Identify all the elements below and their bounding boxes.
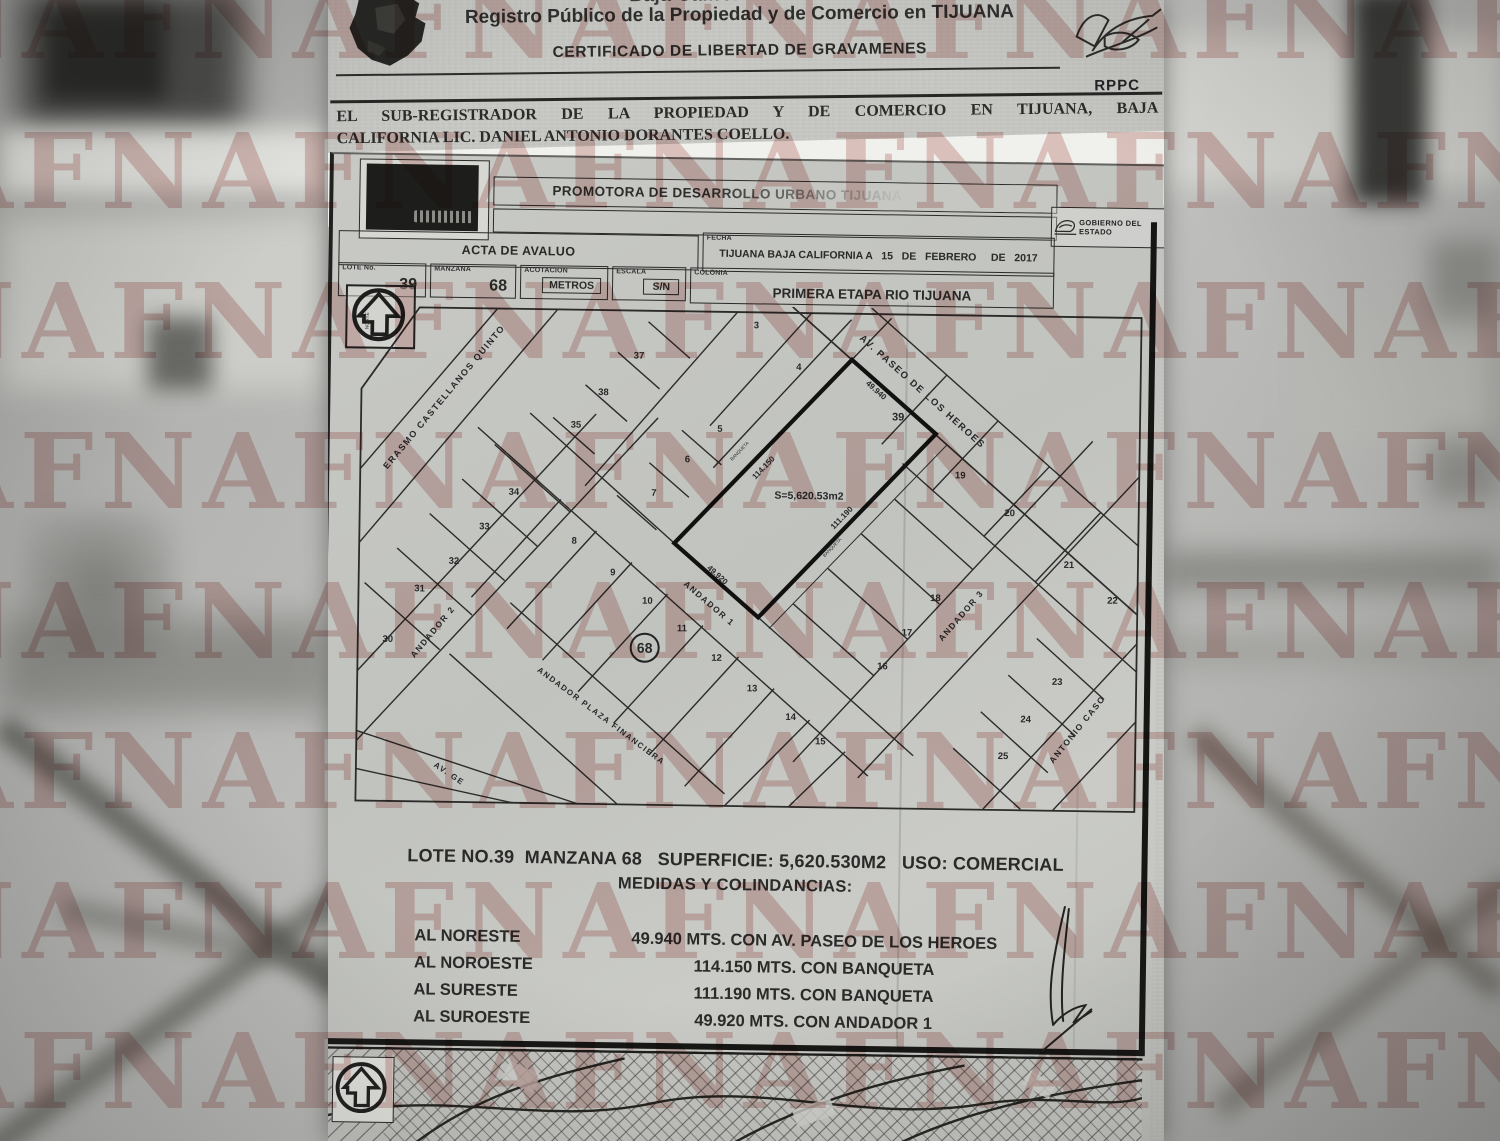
lot-number-label: 30 xyxy=(382,634,393,645)
lot-number-label: 6 xyxy=(685,454,690,465)
lot-number-label: 7 xyxy=(651,488,656,499)
lot-number-label: 22 xyxy=(1107,596,1118,607)
lot-number-label: 4 xyxy=(796,362,802,373)
rppc-logo: RPPC xyxy=(1061,6,1164,95)
lot-number-label: 35 xyxy=(571,420,582,431)
background-blob xyxy=(1430,240,1500,500)
lot-number-label: 34 xyxy=(509,487,520,498)
location-map-strip xyxy=(328,1046,1143,1141)
map-labels: 3456789101112131415161718192021222324253… xyxy=(376,315,1121,797)
photo-canvas: Baja California Registro Público de la P… xyxy=(0,0,1500,1141)
background-blob xyxy=(0,715,347,1000)
lot-number-label: 3 xyxy=(754,320,759,331)
lot-number-label: 23 xyxy=(1052,677,1063,688)
field-label: LOTE No. xyxy=(342,264,376,271)
lot-summary: LOTE NO.39 MANZANA 68 SUPERFICIE: 5,620.… xyxy=(361,845,1108,1045)
fecha-value: TIJUANA BAJA CALIFORNIA A 15 DE FEBRERO … xyxy=(703,248,1053,265)
background-blob xyxy=(1165,636,1500,666)
strip-north-icon xyxy=(333,1057,390,1118)
plan-page: PROMOTORA DE DESARROLLO URBANO TIJUANA G… xyxy=(328,152,1164,1141)
lot-number-label: 37 xyxy=(634,351,645,362)
developer-logo xyxy=(366,164,479,232)
lot-number-label: 25 xyxy=(998,751,1009,762)
background-blob xyxy=(1300,320,1500,440)
lot-number-label: 20 xyxy=(1004,508,1015,519)
logo-text-smudge xyxy=(414,210,472,223)
lot-number-label: 10 xyxy=(642,596,653,607)
boundary-direction: AL SURESTE xyxy=(413,980,591,1010)
background-blob xyxy=(61,899,359,981)
field-value: METROS xyxy=(542,277,601,294)
street-name-label: AV. GE xyxy=(432,760,466,787)
background-blob xyxy=(0,215,330,390)
state-eagle-icon xyxy=(1052,214,1080,240)
lot-number-label: 5 xyxy=(717,424,723,435)
rppc-quill-icon xyxy=(1064,6,1164,73)
lot-39-outline xyxy=(673,357,937,620)
field-label: ACOTACION xyxy=(524,267,568,275)
street-name-label: ANDADOR 3 xyxy=(936,588,985,643)
background-blob xyxy=(18,0,243,130)
lot-number-label: 24 xyxy=(1020,714,1031,725)
sidewalk-label: BANQUETA xyxy=(729,441,750,462)
acta-label: ACTA DE AVALUO xyxy=(462,242,576,258)
lot-number-label: 14 xyxy=(785,712,796,723)
background-blob xyxy=(25,512,175,662)
lot-number-label: 31 xyxy=(414,583,425,594)
map-lines xyxy=(355,301,1141,813)
lot-number-label: 16 xyxy=(877,661,888,672)
dimension-label: 111.190 xyxy=(829,504,855,531)
background-blob xyxy=(1352,0,1426,203)
fecha-field-label: FECHA xyxy=(707,235,732,242)
lot-39-area-label: S=5,620.53m2 xyxy=(774,490,844,503)
lot-number-label: 13 xyxy=(747,683,758,694)
block-number-label: 68 xyxy=(637,640,653,656)
lot-number-label: 11 xyxy=(677,623,688,634)
street-name-label: ANDADOR 2 xyxy=(408,604,457,660)
registry-title: Registro Público de la Propiedad y de Co… xyxy=(389,0,1089,29)
field-manzana: MANZANA 68 xyxy=(430,264,516,299)
certificate-title: CERTIFICADO DE LIBERTAD DE GRAVAMENES xyxy=(390,38,1090,63)
pen-mark xyxy=(1033,903,1105,1059)
field-label: MANZANA xyxy=(434,266,471,274)
field-label: ESCALA xyxy=(616,268,646,275)
boundary-direction: AL NOROESTE xyxy=(414,953,592,983)
background-blob xyxy=(1158,35,1500,185)
lot-number-label: 38 xyxy=(598,387,609,398)
field-label: COLONIA xyxy=(694,269,728,276)
boundary-rows: AL NORESTE49.940 MTS. CON AV. PASEO DE L… xyxy=(361,926,1107,1045)
lot-number-label: 33 xyxy=(479,521,490,532)
gobierno-box: GOBIERNO DEL ESTADO xyxy=(1051,207,1164,249)
field-value: 68 xyxy=(489,277,507,295)
street-name-label: ERASMO CASTELLANOS QUINTO xyxy=(381,323,507,471)
lot-number-label: 18 xyxy=(930,593,941,604)
background-blob xyxy=(0,128,330,194)
field-escala: ESCALA S/N xyxy=(612,266,686,301)
background-blob xyxy=(0,883,350,1141)
field-colonia: COLONIA PRIMERA ETAPA RIO TIJUANA xyxy=(690,267,1054,308)
developer-logo-box xyxy=(359,158,490,240)
field-value: PRIMERA ETAPA RIO TIJUANA xyxy=(691,284,1053,304)
background-blob xyxy=(1188,726,1500,1000)
lot-number-label: 8 xyxy=(572,536,577,547)
street-name-label: ANDADOR PLAZA FINANCIERA xyxy=(536,665,667,766)
lot-number-label: 19 xyxy=(955,470,966,481)
boundary-direction: AL SUROESTE xyxy=(413,1007,591,1037)
lot-number-label: 21 xyxy=(1064,560,1075,571)
lot-number-label: 12 xyxy=(711,653,722,664)
background-blob xyxy=(1212,873,1500,1118)
street-name-label: ANDADOR 1 xyxy=(682,579,737,628)
background-blob xyxy=(0,618,330,710)
header-rule xyxy=(336,67,1060,77)
scanned-document: Baja California Registro Público de la P… xyxy=(328,0,1164,1141)
strip-north-box xyxy=(332,1056,395,1123)
summary-line2: MEDIDAS Y COLINDANCIAS: xyxy=(363,871,1107,901)
cadastral-map: 3456789101112131415161718192021222324253… xyxy=(352,300,1145,818)
street-name-label: ANTONIO CASO xyxy=(1047,693,1107,765)
lot-number-label: 9 xyxy=(610,567,615,578)
field-acotacion: ACOTACION METROS xyxy=(520,265,608,300)
avenue-edge xyxy=(788,307,1141,615)
lot-number-label: 32 xyxy=(449,556,460,567)
lot-39-number: 39 xyxy=(892,411,904,423)
lot-number-label: 15 xyxy=(815,736,826,747)
background-blob xyxy=(148,318,212,390)
promotora-title-bar: PROMOTORA DE DESARROLLO URBANO TIJUANA xyxy=(493,176,1057,213)
field-value: S/N xyxy=(643,279,679,296)
faded-overlay xyxy=(494,177,1056,212)
background-blob xyxy=(45,5,165,100)
boundary-direction: AL NORESTE xyxy=(414,926,592,956)
background-blob xyxy=(1165,552,1500,590)
